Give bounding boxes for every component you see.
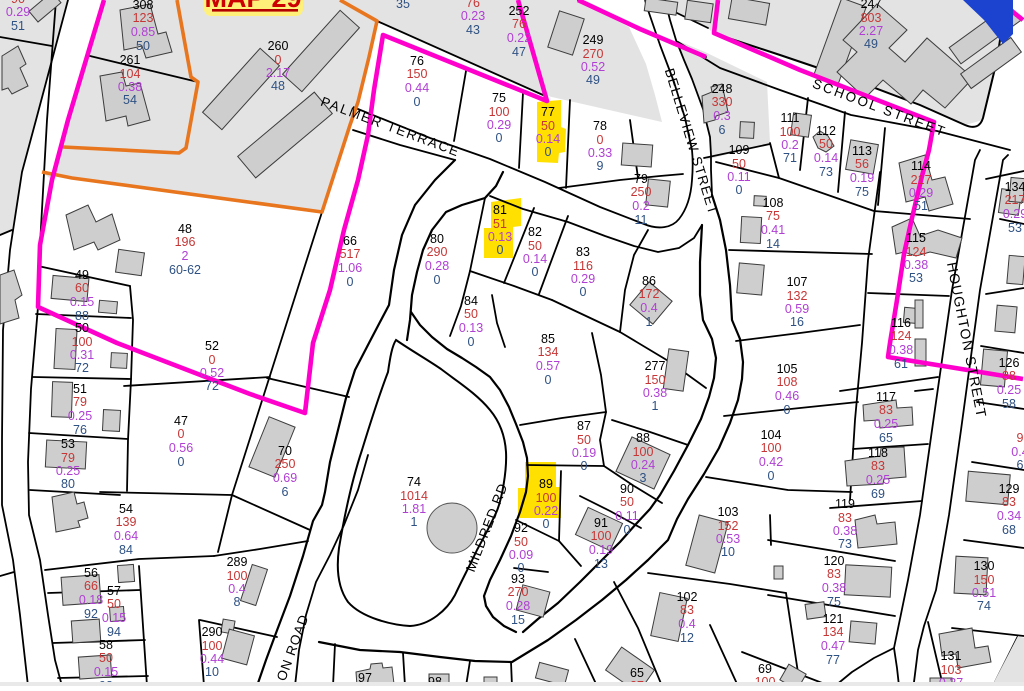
svg-text:12: 12: [680, 631, 694, 645]
svg-text:49: 49: [864, 37, 878, 51]
svg-text:0.47: 0.47: [821, 639, 845, 653]
svg-text:92: 92: [84, 607, 98, 621]
svg-text:0: 0: [178, 455, 185, 469]
svg-text:2: 2: [182, 249, 189, 263]
svg-text:290: 290: [202, 625, 223, 639]
svg-text:0.85: 0.85: [131, 25, 155, 39]
svg-text:79: 79: [73, 395, 87, 409]
svg-text:11: 11: [635, 213, 648, 227]
svg-text:0.38: 0.38: [118, 80, 142, 94]
svg-text:0.44: 0.44: [200, 652, 224, 666]
svg-text:0.53: 0.53: [716, 532, 740, 546]
svg-text:54: 54: [123, 93, 137, 107]
svg-text:0: 0: [178, 427, 185, 441]
svg-text:50: 50: [75, 321, 89, 335]
svg-text:50: 50: [514, 535, 528, 549]
svg-text:126: 126: [999, 356, 1020, 370]
svg-text:121: 121: [823, 612, 844, 626]
svg-text:74: 74: [407, 475, 421, 489]
svg-text:0.38: 0.38: [904, 258, 928, 272]
svg-text:8: 8: [234, 595, 241, 609]
svg-text:88: 88: [636, 431, 650, 445]
svg-text:51: 51: [493, 217, 507, 231]
svg-text:79: 79: [61, 451, 75, 465]
svg-text:83: 83: [576, 245, 590, 259]
svg-text:172: 172: [639, 287, 660, 301]
svg-text:53: 53: [61, 437, 75, 451]
svg-text:113: 113: [852, 144, 872, 158]
svg-text:100: 100: [72, 335, 93, 349]
svg-text:80: 80: [430, 232, 444, 246]
svg-text:1: 1: [652, 399, 659, 413]
svg-text:0.29: 0.29: [909, 186, 933, 200]
svg-text:61: 61: [894, 357, 908, 371]
svg-text:76: 76: [73, 423, 87, 437]
svg-text:0.19: 0.19: [589, 543, 613, 557]
svg-text:100: 100: [633, 445, 654, 459]
svg-text:50: 50: [819, 137, 833, 151]
svg-text:58: 58: [99, 638, 113, 652]
svg-text:120: 120: [824, 554, 845, 568]
svg-text:0.25: 0.25: [866, 473, 890, 487]
svg-text:134: 134: [823, 625, 844, 639]
svg-text:0.15: 0.15: [102, 611, 126, 625]
svg-text:0.57: 0.57: [536, 359, 560, 373]
svg-text:0.11: 0.11: [727, 170, 750, 184]
svg-text:0.23: 0.23: [461, 9, 485, 23]
svg-text:10: 10: [721, 545, 735, 559]
svg-text:100: 100: [761, 441, 782, 455]
svg-text:130: 130: [974, 559, 995, 573]
svg-text:9: 9: [1017, 431, 1024, 445]
svg-text:1.06: 1.06: [338, 261, 362, 275]
svg-text:6: 6: [719, 123, 726, 137]
svg-text:60: 60: [75, 281, 89, 295]
svg-text:0: 0: [580, 285, 587, 299]
svg-text:0.52: 0.52: [581, 60, 605, 74]
svg-text:0.25: 0.25: [997, 383, 1021, 397]
svg-text:104: 104: [120, 67, 141, 81]
svg-text:0.22: 0.22: [534, 504, 558, 518]
svg-text:0.13: 0.13: [488, 230, 512, 244]
svg-text:53: 53: [909, 271, 923, 285]
svg-text:72: 72: [205, 379, 219, 393]
svg-text:0: 0: [347, 275, 354, 289]
svg-text:0.4: 0.4: [1011, 445, 1024, 459]
svg-text:50: 50: [99, 651, 113, 665]
svg-text:330: 330: [712, 95, 733, 109]
svg-text:56: 56: [84, 566, 98, 580]
svg-text:52: 52: [205, 339, 219, 353]
svg-text:118: 118: [868, 446, 888, 460]
svg-text:48: 48: [271, 79, 285, 93]
svg-text:249: 249: [583, 33, 604, 47]
svg-text:0.64: 0.64: [114, 529, 138, 543]
svg-text:66: 66: [343, 234, 357, 248]
svg-text:0.2: 0.2: [632, 199, 649, 213]
svg-text:70: 70: [278, 444, 292, 458]
svg-text:0: 0: [496, 131, 503, 145]
svg-text:49: 49: [75, 268, 89, 282]
svg-text:115: 115: [906, 231, 926, 245]
svg-text:90: 90: [620, 482, 634, 496]
svg-text:0: 0: [545, 145, 552, 159]
svg-text:47: 47: [174, 414, 188, 428]
svg-text:79: 79: [634, 172, 648, 186]
svg-text:0.3: 0.3: [713, 109, 730, 123]
svg-text:51: 51: [11, 19, 25, 33]
svg-text:43: 43: [466, 23, 480, 37]
svg-text:54: 54: [119, 502, 133, 516]
svg-text:66: 66: [84, 579, 98, 593]
svg-text:0.15: 0.15: [70, 295, 94, 309]
svg-text:65: 65: [879, 431, 893, 445]
svg-text:60-62: 60-62: [169, 263, 201, 277]
svg-text:270: 270: [583, 47, 604, 61]
svg-text:250: 250: [275, 457, 296, 471]
svg-text:124: 124: [906, 245, 927, 259]
svg-text:80: 80: [61, 477, 75, 491]
svg-text:0.25: 0.25: [874, 417, 898, 431]
svg-text:81: 81: [493, 203, 507, 217]
svg-text:77: 77: [541, 105, 555, 119]
svg-text:0.19: 0.19: [850, 171, 874, 185]
svg-text:69: 69: [871, 487, 885, 501]
svg-text:100: 100: [780, 125, 801, 139]
svg-text:84: 84: [119, 543, 133, 557]
svg-text:76: 76: [410, 54, 424, 68]
svg-text:0.28: 0.28: [506, 599, 530, 613]
svg-text:100: 100: [536, 491, 557, 505]
svg-text:0.19: 0.19: [572, 446, 596, 460]
svg-text:75: 75: [766, 209, 780, 223]
svg-text:0.29: 0.29: [487, 118, 511, 132]
svg-text:103: 103: [941, 663, 962, 677]
svg-text:68: 68: [1002, 523, 1016, 537]
svg-text:108: 108: [763, 196, 784, 210]
svg-text:129: 129: [999, 482, 1020, 496]
svg-text:10: 10: [205, 665, 219, 679]
svg-text:104: 104: [761, 428, 782, 442]
svg-text:16: 16: [790, 315, 804, 329]
svg-text:290: 290: [427, 245, 448, 259]
svg-text:50: 50: [732, 157, 746, 171]
svg-text:0.13: 0.13: [459, 321, 483, 335]
svg-text:108: 108: [777, 375, 798, 389]
svg-text:124: 124: [891, 329, 912, 343]
svg-text:217: 217: [911, 173, 932, 187]
svg-text:0.52: 0.52: [200, 366, 224, 380]
svg-text:0: 0: [414, 95, 421, 109]
svg-text:73: 73: [819, 165, 833, 179]
svg-text:150: 150: [407, 67, 428, 81]
svg-text:103: 103: [718, 505, 739, 519]
svg-text:53: 53: [1008, 221, 1022, 235]
svg-text:0.4: 0.4: [228, 582, 245, 596]
svg-text:0.14: 0.14: [814, 151, 838, 165]
svg-text:100: 100: [489, 105, 510, 119]
svg-text:89: 89: [539, 477, 553, 491]
svg-text:83: 83: [827, 567, 841, 581]
svg-text:116: 116: [891, 316, 911, 330]
svg-text:0.46: 0.46: [775, 389, 799, 403]
svg-text:517: 517: [340, 247, 361, 261]
svg-text:111: 111: [780, 111, 799, 125]
svg-text:35: 35: [396, 0, 410, 11]
svg-text:57: 57: [107, 584, 121, 598]
svg-text:77: 77: [826, 653, 840, 667]
svg-text:803: 803: [861, 11, 882, 25]
svg-text:132: 132: [787, 289, 808, 303]
svg-text:83: 83: [879, 403, 893, 417]
svg-text:0: 0: [468, 335, 475, 349]
svg-text:247: 247: [861, 0, 882, 11]
svg-text:50: 50: [464, 307, 478, 321]
svg-text:114: 114: [911, 159, 931, 173]
svg-text:1014: 1014: [400, 489, 428, 503]
svg-text:139: 139: [116, 515, 137, 529]
svg-text:0: 0: [209, 353, 216, 367]
svg-text:0.4: 0.4: [678, 617, 695, 631]
svg-text:3: 3: [640, 471, 647, 485]
svg-text:86: 86: [642, 274, 656, 288]
svg-text:0.09: 0.09: [509, 548, 533, 562]
svg-text:252: 252: [509, 4, 530, 18]
svg-text:65: 65: [630, 666, 644, 680]
svg-text:2.17: 2.17: [266, 66, 290, 80]
svg-text:134: 134: [1005, 180, 1024, 194]
svg-text:15: 15: [511, 613, 525, 627]
svg-text:88: 88: [1002, 369, 1016, 383]
svg-text:83: 83: [871, 459, 885, 473]
svg-text:0.25: 0.25: [68, 409, 92, 423]
svg-text:0.33: 0.33: [588, 146, 612, 160]
svg-text:50: 50: [107, 597, 121, 611]
svg-text:14: 14: [766, 237, 780, 251]
svg-text:0: 0: [784, 403, 791, 417]
svg-text:6: 6: [282, 485, 289, 499]
svg-text:0: 0: [624, 523, 631, 537]
svg-text:0.29: 0.29: [6, 5, 30, 19]
svg-text:196: 196: [175, 235, 196, 249]
svg-text:260: 260: [268, 39, 289, 53]
svg-text:0: 0: [736, 183, 743, 197]
svg-text:131: 131: [941, 649, 962, 663]
svg-text:0.42: 0.42: [759, 455, 783, 469]
svg-text:72: 72: [75, 361, 89, 375]
svg-text:50: 50: [136, 39, 150, 53]
svg-text:58: 58: [1002, 397, 1016, 411]
svg-text:87: 87: [577, 419, 591, 433]
svg-text:13: 13: [594, 557, 608, 571]
svg-text:6: 6: [1017, 458, 1024, 472]
svg-text:78: 78: [593, 119, 607, 133]
svg-text:0.14: 0.14: [536, 132, 560, 146]
svg-text:0: 0: [545, 373, 552, 387]
svg-text:1: 1: [411, 515, 418, 529]
svg-text:92: 92: [514, 521, 528, 535]
svg-text:94: 94: [107, 625, 121, 639]
svg-text:0: 0: [597, 133, 604, 147]
svg-text:0.28: 0.28: [425, 259, 449, 273]
svg-text:270: 270: [508, 585, 529, 599]
svg-text:0.11: 0.11: [615, 509, 638, 523]
svg-text:0.24: 0.24: [631, 458, 655, 472]
svg-text:51: 51: [73, 382, 87, 396]
svg-text:1: 1: [646, 315, 653, 329]
svg-text:56: 56: [855, 157, 869, 171]
svg-text:83: 83: [838, 511, 852, 525]
svg-text:73: 73: [838, 537, 852, 551]
svg-text:2.27: 2.27: [859, 24, 883, 38]
svg-text:0.38: 0.38: [643, 386, 667, 400]
svg-text:109: 109: [729, 143, 750, 157]
svg-text:277: 277: [645, 359, 666, 373]
svg-text:0.38: 0.38: [833, 524, 857, 538]
svg-text:0: 0: [543, 517, 550, 531]
svg-text:0.29: 0.29: [1003, 207, 1024, 221]
svg-text:102: 102: [677, 590, 698, 604]
svg-text:0.34: 0.34: [997, 509, 1021, 523]
svg-text:150: 150: [974, 573, 995, 587]
svg-text:119: 119: [835, 497, 855, 511]
svg-text:0: 0: [768, 469, 775, 483]
svg-text:48: 48: [178, 222, 192, 236]
svg-text:289: 289: [227, 555, 248, 569]
svg-text:105: 105: [777, 362, 798, 376]
svg-text:248: 248: [712, 82, 733, 96]
svg-text:0.22: 0.22: [507, 31, 531, 45]
svg-text:0.51: 0.51: [972, 586, 996, 600]
svg-text:84: 84: [464, 294, 478, 308]
svg-text:107: 107: [787, 275, 808, 289]
svg-text:0: 0: [275, 53, 282, 67]
svg-text:74: 74: [977, 599, 991, 613]
svg-text:0.15: 0.15: [94, 665, 118, 679]
svg-text:112: 112: [816, 124, 836, 138]
svg-text:100: 100: [202, 639, 223, 653]
svg-text:0.56: 0.56: [169, 441, 193, 455]
svg-text:75: 75: [492, 91, 506, 105]
svg-text:83: 83: [680, 603, 694, 617]
svg-text:134: 134: [538, 345, 559, 359]
svg-text:47: 47: [512, 45, 526, 59]
svg-text:217: 217: [1005, 193, 1024, 207]
svg-text:51: 51: [914, 199, 928, 213]
svg-text:250: 250: [631, 185, 652, 199]
svg-text:0: 0: [581, 459, 588, 473]
svg-text:75: 75: [827, 595, 841, 609]
svg-text:85: 85: [541, 332, 555, 346]
svg-text:0.14: 0.14: [523, 252, 547, 266]
svg-text:0.59: 0.59: [785, 302, 809, 316]
svg-text:0.38: 0.38: [822, 581, 846, 595]
svg-text:117: 117: [876, 390, 896, 404]
svg-text:150: 150: [645, 373, 666, 387]
svg-text:0.44: 0.44: [405, 81, 429, 95]
svg-text:76: 76: [512, 17, 526, 31]
svg-text:50: 50: [541, 119, 555, 133]
svg-text:100: 100: [227, 569, 248, 583]
svg-text:49: 49: [586, 73, 600, 87]
svg-text:69: 69: [758, 662, 772, 676]
svg-text:0.38: 0.38: [889, 343, 913, 357]
svg-text:50: 50: [620, 495, 634, 509]
svg-text:0: 0: [434, 273, 441, 287]
svg-text:83: 83: [1002, 495, 1016, 509]
svg-text:0.29: 0.29: [571, 272, 595, 286]
svg-text:0.2: 0.2: [781, 138, 798, 152]
svg-text:0.41: 0.41: [761, 223, 785, 237]
svg-text:93: 93: [511, 572, 525, 586]
svg-text:0.4: 0.4: [640, 301, 657, 315]
svg-text:0.31: 0.31: [70, 348, 94, 362]
svg-text:1.81: 1.81: [402, 502, 426, 516]
svg-text:82: 82: [528, 225, 542, 239]
svg-text:75: 75: [855, 185, 869, 199]
svg-text:0: 0: [497, 243, 504, 257]
svg-text:100: 100: [591, 529, 612, 543]
svg-text:50: 50: [577, 433, 591, 447]
svg-text:116: 116: [573, 259, 593, 273]
svg-text:9: 9: [597, 159, 604, 173]
svg-text:0.25: 0.25: [56, 464, 80, 478]
svg-text:91: 91: [594, 516, 608, 530]
svg-text:0.18: 0.18: [79, 593, 103, 607]
svg-text:0.69: 0.69: [273, 471, 297, 485]
svg-text:123: 123: [133, 11, 154, 25]
svg-text:71: 71: [783, 151, 797, 165]
svg-text:261: 261: [120, 53, 141, 67]
svg-text:152: 152: [718, 519, 739, 533]
svg-text:0: 0: [532, 265, 539, 279]
svg-text:50: 50: [528, 239, 542, 253]
